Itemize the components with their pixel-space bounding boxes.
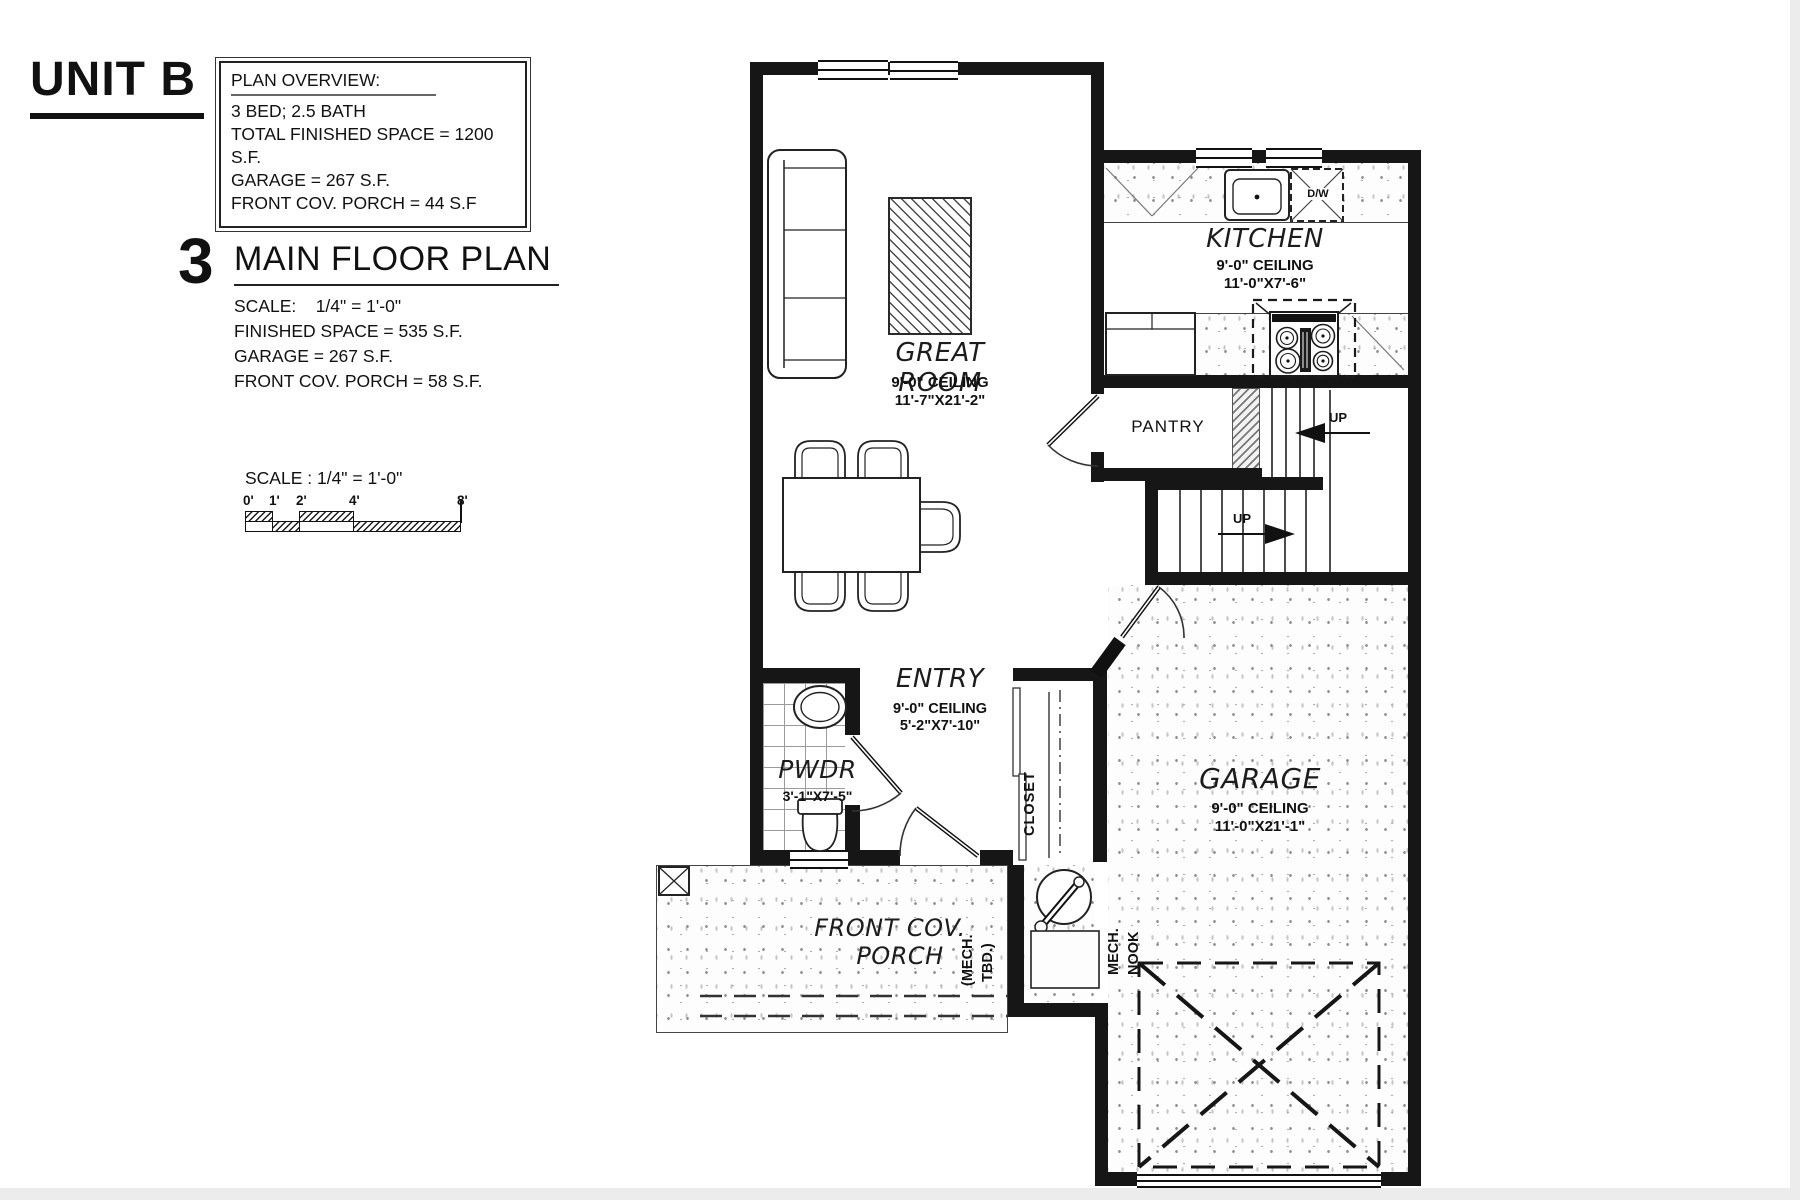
dishwasher-label: D/W [1300, 188, 1336, 200]
plan-overview-title-text: PLAN OVERVIEW: [231, 69, 436, 96]
plan-overview-title: PLAN OVERVIEW: [231, 69, 515, 96]
plan-detail-porch: FRONT COV. PORCH = 58 S.F. [234, 369, 482, 394]
window-pwdr [790, 850, 848, 869]
great-room-ceiling: 9'-0" CEILING [860, 374, 1020, 391]
stair-arrow-lower [1218, 524, 1295, 544]
entry-ceiling: 9'-0" CEILING [870, 701, 1010, 717]
garage-floor [1108, 585, 1408, 1172]
pwdr-dims: 3'-1"X7'-5" [765, 788, 870, 804]
wall-nook-south [1008, 1003, 1108, 1017]
up-label-lower: UP [1233, 511, 1251, 526]
plan-number: 3 [178, 224, 214, 298]
mech-nook-floor [1024, 865, 1095, 1003]
kitchen-lower-counter [1195, 313, 1408, 376]
sofa [768, 150, 846, 378]
entry-dims: 5'-2"X7'-10" [870, 718, 1010, 734]
garage-dims: 11'-0"X21'-1" [1180, 818, 1340, 835]
stair-arrow-upper [1295, 423, 1370, 443]
wall-kitchen-north [1104, 150, 1421, 163]
overview-line-beds: 3 BED; 2.5 BATH [231, 100, 515, 123]
kitchen-dims: 11'-0"X7'-6" [1185, 275, 1345, 292]
wall-pantry-door-stub [1091, 452, 1104, 482]
window-great-room-b [890, 61, 958, 80]
wall-east [1408, 150, 1421, 1186]
wall-closet-east [1093, 668, 1107, 862]
wall-pwdr-east-upper [845, 683, 860, 735]
wall-front-a [750, 850, 790, 865]
graphic-scale: SCALE : 1/4" = 1'-0" 0' 1' 2' 4' 8' [245, 468, 485, 533]
plan-overview-box: PLAN OVERVIEW: 3 BED; 2.5 BATH TOTAL FIN… [215, 57, 531, 232]
page-edge-bottom [0, 1188, 1800, 1200]
tick-1ft: 1' [269, 493, 280, 508]
wall-garage-south-b [1381, 1172, 1421, 1186]
graphic-scale-ticks: 0' 1' 2' 4' 8' [245, 493, 485, 511]
porch-label-line2: PORCH [820, 942, 980, 970]
up-label-upper: UP [1329, 410, 1347, 425]
plan-detail-garage: GARAGE = 267 S.F. [234, 344, 482, 369]
great-room-dims: 11'-7"X21'-2" [860, 392, 1020, 409]
tick-8ft: 8' [457, 493, 468, 508]
pantry-stair-hatched-wall [1232, 388, 1260, 470]
mech-tbd-label-line2: TBD.) [980, 892, 996, 982]
wall-front-b [848, 850, 900, 865]
entry-label: ENTRY [870, 664, 1010, 694]
porch-label-line1: FRONT COV. [800, 914, 980, 942]
tick-4ft: 4' [349, 493, 360, 508]
tick-0ft: 0' [243, 493, 254, 508]
wall-garage-south-a [1095, 1172, 1137, 1186]
garage-ceiling: 9'-0" CEILING [1180, 800, 1340, 817]
scale-seg-hatch-c [272, 521, 300, 532]
plan-scale-line: SCALE: 1/4" = 1'-0" [234, 294, 482, 319]
floor-plan-sheet: UNIT B PLAN OVERVIEW: 3 BED; 2.5 BATH TO… [0, 0, 1800, 1200]
dining-table [783, 441, 960, 611]
wall-nook-west [1008, 865, 1024, 1007]
wall-west [750, 62, 763, 865]
refrigerator [1106, 313, 1195, 375]
scale-end-tick [460, 499, 462, 523]
pantry-label: PANTRY [1118, 417, 1218, 437]
front-door [900, 808, 978, 856]
scale-seg-hatch-d [353, 521, 461, 532]
window-great-room-a [818, 60, 888, 80]
mech-nook-label-line2: NOOK [1126, 890, 1142, 975]
pwdr-label: PWDR [770, 755, 865, 784]
closet-label: CLOSET [1022, 746, 1038, 836]
overview-line-garage: GARAGE = 267 S.F. [231, 169, 515, 192]
wall-stair-mid [1145, 477, 1323, 490]
tick-2ft: 2' [296, 493, 307, 508]
window-kitchen-a [1196, 148, 1252, 168]
mech-nook-label-line1: MECH. [1106, 890, 1122, 975]
wall-kitchen-south [1091, 375, 1421, 388]
graphic-scale-bar [245, 511, 465, 533]
window-kitchen-b [1266, 148, 1322, 168]
kitchen-label: KITCHEN [1185, 224, 1345, 254]
wall-great-room-east [1091, 62, 1104, 394]
area-rug [888, 197, 972, 335]
porch-column [658, 866, 690, 896]
page-edge-right [1790, 0, 1800, 1200]
garage-label: GARAGE [1180, 762, 1340, 795]
mech-tbd-label-line1: (MECH. [960, 886, 976, 986]
wall-front-c [980, 850, 1013, 865]
garage-overhead-door [1137, 1174, 1381, 1188]
overview-line-space: TOTAL FINISHED SPACE = 1200 S.F. [231, 123, 515, 169]
kitchen-upper-counter [1104, 163, 1408, 223]
graphic-scale-title: SCALE : 1/4" = 1'-0" [245, 468, 485, 489]
wall-garage-west [1095, 1005, 1108, 1186]
wall-pwdr-north [763, 668, 860, 683]
wall-stair-south [1145, 572, 1421, 585]
plan-title: MAIN FLOOR PLAN [234, 240, 559, 286]
unit-title: UNIT B [30, 52, 204, 119]
plan-detail-space: FINISHED SPACE = 535 S.F. [234, 319, 482, 344]
plan-details: SCALE: 1/4" = 1'-0" FINISHED SPACE = 535… [234, 294, 482, 393]
overview-line-porch: FRONT COV. PORCH = 44 S.F [231, 192, 515, 215]
kitchen-ceiling: 9'-0" CEILING [1185, 257, 1345, 274]
